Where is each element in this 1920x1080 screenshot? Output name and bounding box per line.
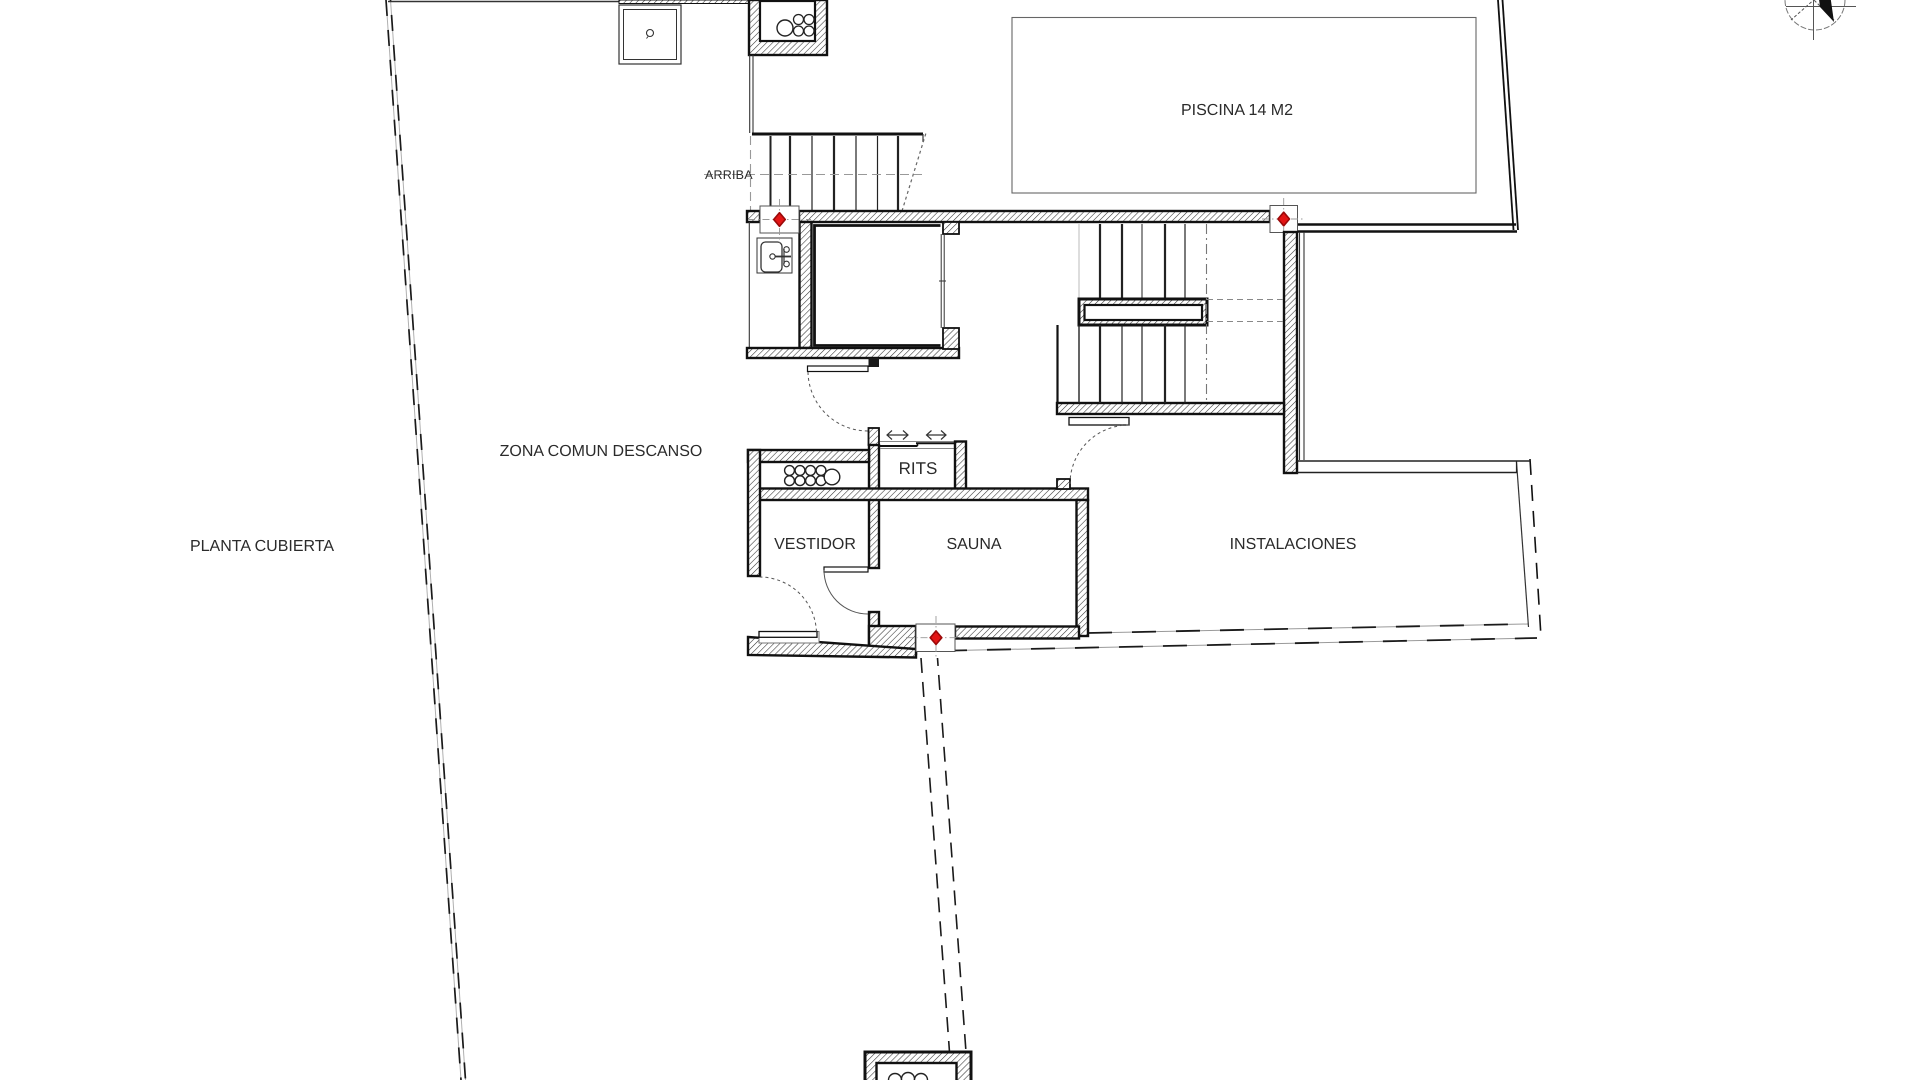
svg-text:SAUNA: SAUNA — [946, 536, 1001, 553]
svg-text:VESTIDOR: VESTIDOR — [774, 536, 856, 553]
svg-text:PLANTA CUBIERTA: PLANTA CUBIERTA — [190, 538, 334, 555]
svg-text:ZONA COMUN DESCANSO: ZONA COMUN DESCANSO — [500, 443, 703, 460]
svg-text:INSTALACIONES: INSTALACIONES — [1230, 536, 1357, 553]
svg-text:ARRIBA: ARRIBA — [705, 168, 753, 182]
svg-text:RITS: RITS — [899, 459, 938, 478]
svg-text:PISCINA 14 M2: PISCINA 14 M2 — [1181, 102, 1293, 119]
